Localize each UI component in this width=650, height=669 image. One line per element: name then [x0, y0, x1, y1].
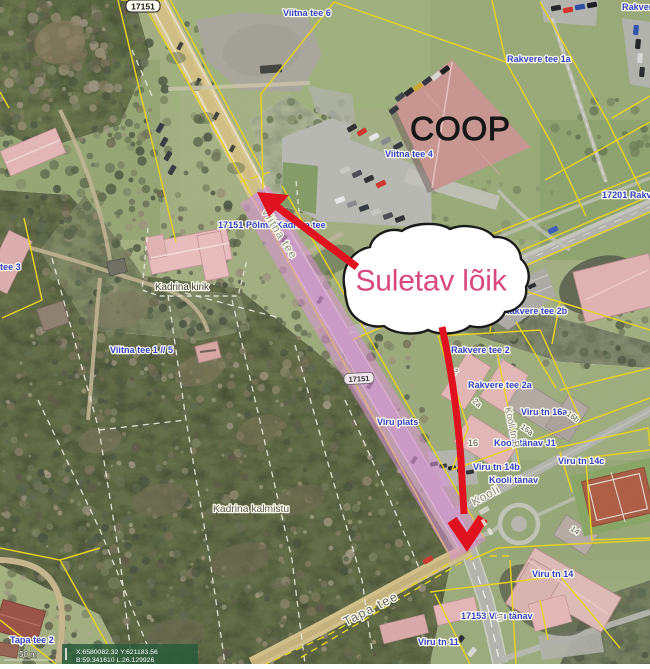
- svg-text:Tapa tee 2: Tapa tee 2: [10, 635, 54, 645]
- svg-text:Suletav lõik: Suletav lõik: [355, 265, 507, 298]
- svg-text:B:59.341610 L:26.129926: B:59.341610 L:26.129926: [76, 657, 154, 664]
- svg-text:Rakvere tee 2: Rakvere tee 2: [451, 345, 510, 355]
- svg-text:COOP: COOP: [410, 111, 511, 148]
- svg-text:17201 Rakv: 17201 Rakv: [602, 190, 650, 200]
- svg-text:Viru tn 16a: Viru tn 16a: [521, 407, 568, 417]
- svg-text:Rakvere tee 2a: Rakvere tee 2a: [468, 380, 533, 390]
- svg-text:X:6580082.32 Y:621183.56: X:6580082.32 Y:621183.56: [76, 649, 158, 656]
- svg-text:Viitna tee 1 // 5: Viitna tee 1 // 5: [110, 345, 173, 355]
- svg-text:Viru tn 14c: Viru tn 14c: [558, 456, 604, 466]
- svg-text:16: 16: [468, 438, 478, 448]
- svg-text:17151: 17151: [131, 2, 155, 12]
- svg-text:Viru tn 11: Viru tn 11: [418, 637, 459, 647]
- svg-text:50 m: 50 m: [19, 650, 37, 659]
- svg-text:Viru tn 14: Viru tn 14: [532, 569, 574, 579]
- svg-text:Rakvere: Rakvere: [622, 2, 650, 12]
- svg-text:Viru plats: Viru plats: [377, 417, 418, 427]
- svg-text:Viitna tee 6: Viitna tee 6: [283, 8, 331, 18]
- svg-text:Kadrina kalmistu: Kadrina kalmistu: [213, 504, 289, 515]
- svg-text:Kooli tänav J1: Kooli tänav J1: [494, 438, 556, 448]
- svg-text:Kadrina kirik: Kadrina kirik: [155, 282, 209, 293]
- svg-text:tee 3: tee 3: [0, 262, 21, 272]
- svg-text:Viru tn 14b: Viru tn 14b: [473, 462, 520, 472]
- svg-text:17151: 17151: [348, 374, 369, 384]
- svg-text:Rakvere tee 1a: Rakvere tee 1a: [507, 54, 572, 64]
- svg-text:Viitna tee 4: Viitna tee 4: [385, 149, 434, 159]
